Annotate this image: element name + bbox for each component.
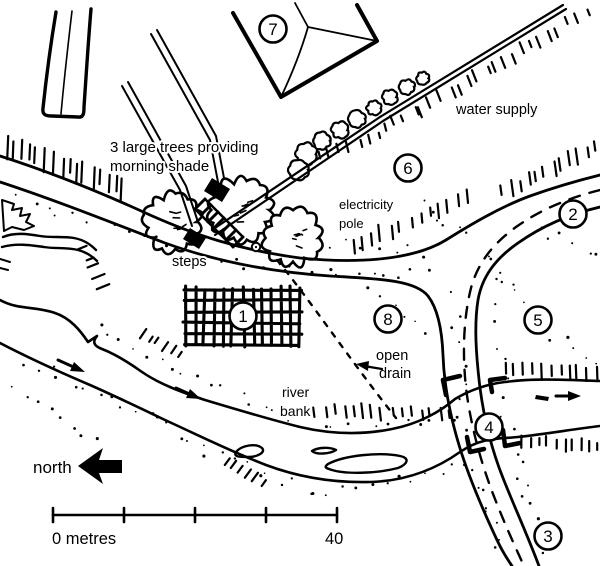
through-road-east-edge [476,207,600,566]
bush [399,79,415,95]
svg-text:1: 1 [238,307,247,326]
island [326,454,407,473]
svg-text:5: 5 [533,311,542,330]
scale-bar: 0 metres 40 [52,508,343,548]
flow-arrow [58,360,85,372]
label-trees-line1: 3 large trees providing [110,139,258,156]
scale-end-label: 40 [325,530,343,548]
building-outline [233,5,377,97]
svg-text:4: 4 [484,418,493,437]
label-electricity-line1: electricity [339,197,394,212]
marker-4: 4 [476,414,503,441]
svg-text:7: 7 [268,20,277,39]
flow-arrow [176,388,201,399]
field-plot-outline [43,9,91,117]
label-electricity-line2: pole [339,216,364,231]
label-trees-line2: morning shade [110,158,209,175]
flow-arrow [535,391,581,401]
bush [331,121,349,138]
island [312,448,336,454]
svg-text:2: 2 [568,205,577,224]
map-canvas: 3 large trees providing morning shade wa… [0,0,600,566]
label-drain-line1: open [376,348,408,364]
label-river-line2: bank [280,403,311,419]
marker-6: 6 [395,155,422,182]
field-plot-centerline [61,11,72,114]
scale-zero-label: 0 metres [52,530,116,548]
bush [382,90,398,105]
label-water-supply: water supply [455,102,538,118]
svg-text:3: 3 [543,527,552,546]
bush [366,100,381,115]
marker-1: 1 [230,303,257,330]
svg-text:8: 8 [383,310,392,329]
label-drain-line2: drain [379,366,411,382]
bush [348,110,366,128]
svg-text:6: 6 [403,159,412,178]
marker-2: 2 [560,201,587,228]
label-steps: steps [172,254,207,270]
label-river-line1: river [282,384,310,400]
marker-5: 5 [525,307,552,334]
marker-3: 3 [535,523,562,550]
electricity-pole-dot [252,243,260,251]
sketch-map: 3 large trees providing morning shade wa… [0,0,600,566]
water-mark [535,395,549,401]
label-north: north [33,458,72,477]
marker-8: 8 [375,306,402,333]
north-arrow [78,448,122,484]
bush [416,72,429,85]
marker-7: 7 [260,16,287,43]
bush [313,132,331,150]
